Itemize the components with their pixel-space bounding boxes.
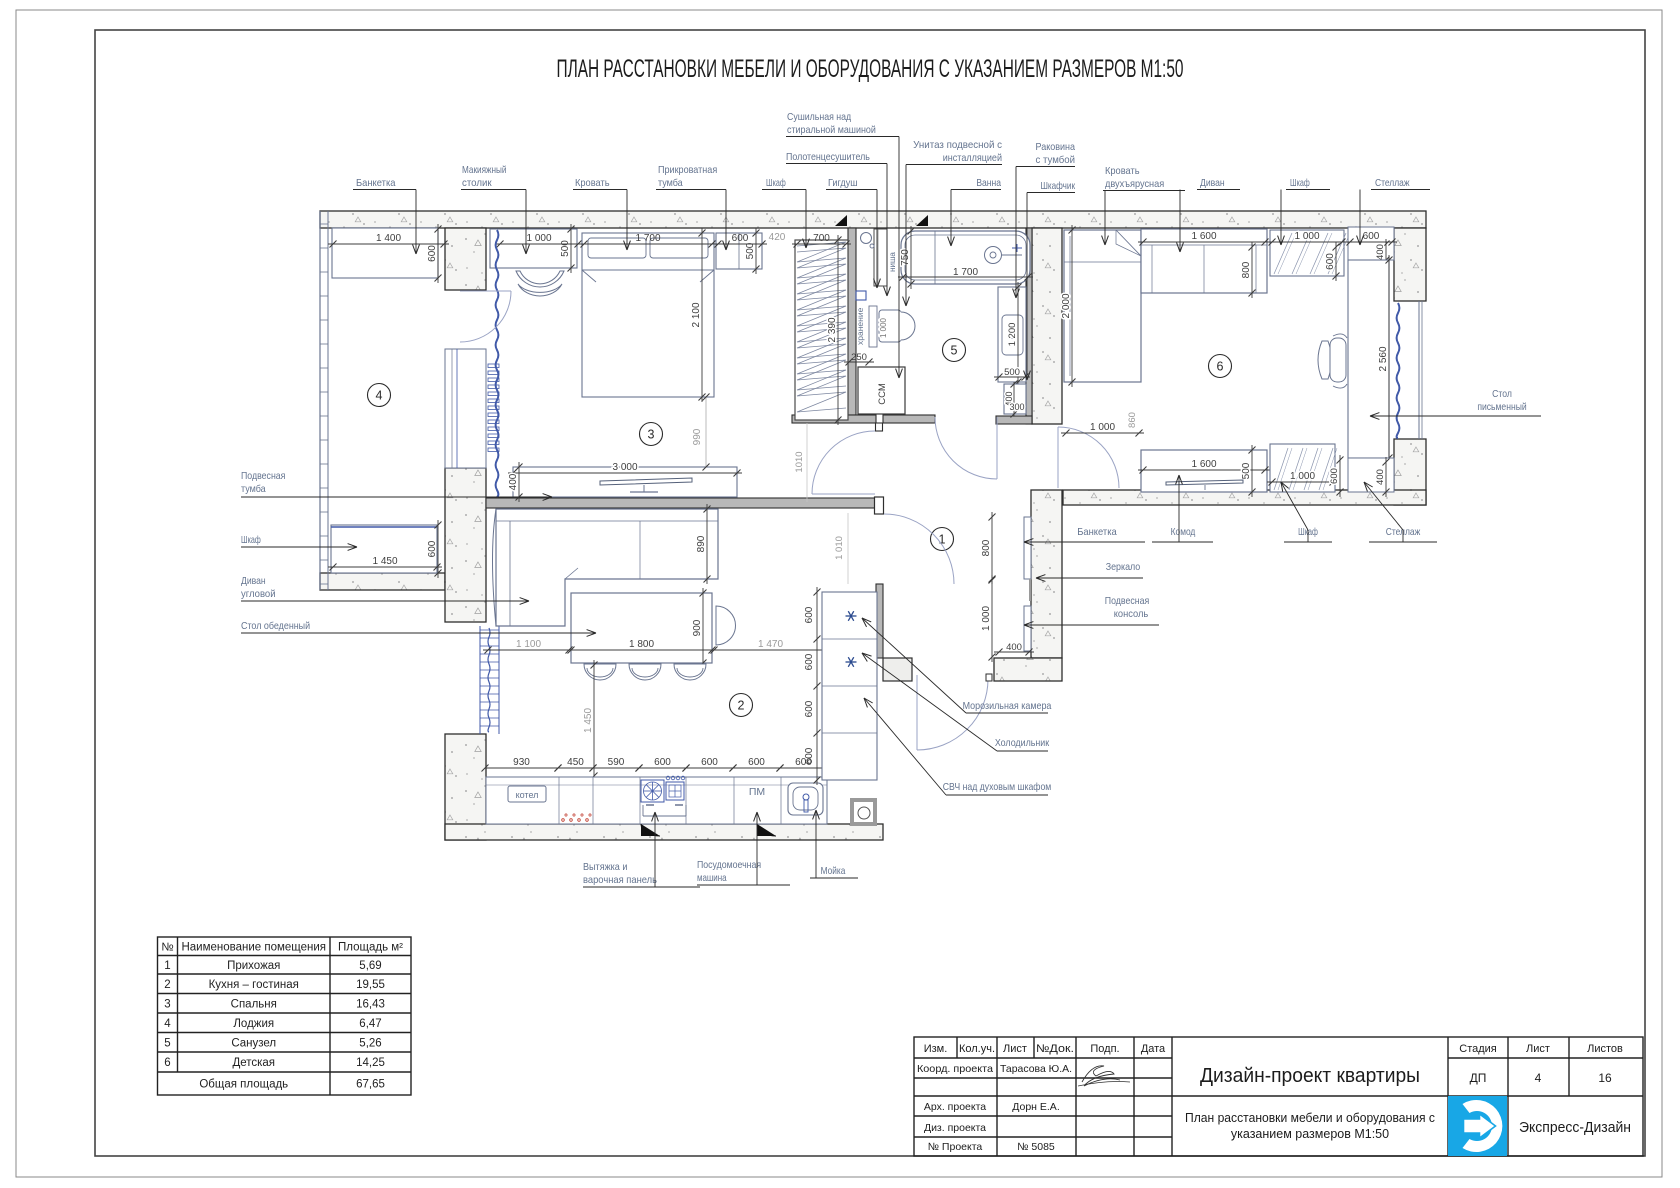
svg-text:ПЛАН РАССТАНОВКИ МЕБЕЛИ И ОБОР: ПЛАН РАССТАНОВКИ МЕБЕЛИ И ОБОРУДОВАНИЯ С… <box>557 55 1184 83</box>
svg-text:2 390: 2 390 <box>827 317 838 342</box>
svg-text:котел: котел <box>516 790 539 800</box>
svg-text:Кровать: Кровать <box>575 177 610 189</box>
svg-text:1 000: 1 000 <box>879 317 888 338</box>
svg-text:2: 2 <box>164 979 170 991</box>
svg-text:Зеркало: Зеркало <box>1106 561 1141 573</box>
svg-text:ССМ: ССМ <box>877 383 888 405</box>
svg-text:Лист: Лист <box>1526 1043 1550 1055</box>
svg-text:600: 600 <box>1325 253 1336 270</box>
svg-text:ПМ: ПМ <box>749 786 765 798</box>
svg-text:Площадь м²: Площадь м² <box>338 941 403 953</box>
svg-text:5: 5 <box>164 1037 170 1049</box>
svg-text:1 100: 1 100 <box>516 639 541 650</box>
svg-text:План расстановки мебели и обор: План расстановки мебели и оборудования с <box>1185 1111 1435 1125</box>
svg-text:Стол обеденный: Стол обеденный <box>241 620 310 632</box>
svg-text:1010: 1010 <box>794 451 805 472</box>
svg-text:хранение: хранение <box>855 307 865 345</box>
svg-text:14,25: 14,25 <box>356 1057 385 1069</box>
svg-text:Экспресс-Дизайн: Экспресс-Дизайн <box>1519 1120 1631 1136</box>
svg-text:Кол.уч.: Кол.уч. <box>959 1043 995 1055</box>
svg-text:№ Проекта: № Проекта <box>928 1141 983 1153</box>
svg-text:Прикроватная: Прикроватная <box>658 164 717 176</box>
svg-text:Кровать: Кровать <box>1105 165 1140 177</box>
svg-text:600: 600 <box>701 757 718 768</box>
svg-text:2 000: 2 000 <box>1061 293 1072 318</box>
svg-text:1 450: 1 450 <box>583 708 594 733</box>
svg-text:Диван: Диван <box>241 575 266 587</box>
svg-text:инсталляцией: инсталляцией <box>943 152 1002 164</box>
svg-text:1 600: 1 600 <box>1191 459 1216 470</box>
svg-text:Диз. проекта: Диз. проекта <box>924 1122 986 1134</box>
svg-text:1 000: 1 000 <box>1294 231 1319 242</box>
svg-text:варочная панель: варочная панель <box>583 874 657 886</box>
svg-text:Раковина: Раковина <box>1036 141 1076 153</box>
svg-text:машина: машина <box>697 872 727 884</box>
svg-text:столик: столик <box>462 177 492 189</box>
svg-text:600: 600 <box>804 653 815 670</box>
svg-text:600: 600 <box>732 233 749 244</box>
svg-text:Холодильник: Холодильник <box>995 737 1050 749</box>
svg-text:450: 450 <box>567 757 584 768</box>
svg-text:с тумбой: с тумбой <box>1036 154 1076 166</box>
svg-text:400: 400 <box>1375 244 1386 260</box>
svg-text:Полотенцесушитель: Полотенцесушитель <box>786 151 870 163</box>
svg-text:1 010: 1 010 <box>834 536 845 560</box>
svg-text:Подвесная: Подвесная <box>1105 595 1149 607</box>
svg-text:500: 500 <box>1241 462 1252 479</box>
svg-text:Листов: Листов <box>1587 1043 1623 1055</box>
svg-text:Прихожая: Прихожая <box>227 960 280 972</box>
svg-text:Кухня – гостиная: Кухня – гостиная <box>209 979 299 991</box>
svg-text:Подвесная: Подвесная <box>241 470 285 482</box>
svg-text:Подп.: Подп. <box>1090 1043 1119 1055</box>
svg-text:19,55: 19,55 <box>356 979 385 991</box>
svg-text:Посудомоечная: Посудомоечная <box>697 859 761 871</box>
svg-text:Шкаф: Шкаф <box>1290 177 1310 189</box>
svg-text:5: 5 <box>951 344 958 358</box>
svg-text:1 470: 1 470 <box>758 639 783 650</box>
svg-text:600: 600 <box>1363 231 1380 242</box>
svg-text:600: 600 <box>804 747 815 764</box>
svg-text:Дизайн-проект квартиры: Дизайн-проект квартиры <box>1200 1065 1420 1087</box>
svg-text:Арх. проекта: Арх. проекта <box>924 1101 986 1113</box>
svg-text:Мойка: Мойка <box>821 865 846 877</box>
svg-text:5,69: 5,69 <box>359 960 381 972</box>
svg-text:16: 16 <box>1598 1071 1612 1085</box>
svg-text:1 600: 1 600 <box>1191 231 1216 242</box>
svg-text:1 000: 1 000 <box>1290 471 1315 482</box>
svg-text:Дорн Е.А.: Дорн Е.А. <box>1012 1101 1059 1113</box>
svg-text:консоль: консоль <box>1114 608 1149 620</box>
svg-text:600: 600 <box>427 540 438 557</box>
svg-text:990: 990 <box>692 428 703 445</box>
svg-text:600: 600 <box>804 606 815 623</box>
svg-text:6,47: 6,47 <box>359 1018 381 1030</box>
svg-text:Шкаф: Шкаф <box>766 177 786 189</box>
svg-text:Гигдуш: Гигдуш <box>828 177 858 189</box>
svg-text:750: 750 <box>900 249 911 266</box>
svg-text:Общая площадь: Общая площадь <box>199 1079 288 1091</box>
svg-text:600: 600 <box>748 757 765 768</box>
svg-text:3: 3 <box>164 998 170 1010</box>
svg-text:4: 4 <box>164 1018 171 1030</box>
svg-text:Изм.: Изм. <box>924 1043 948 1055</box>
svg-text:3 000: 3 000 <box>612 462 637 473</box>
svg-text:420: 420 <box>769 232 786 243</box>
svg-text:1: 1 <box>164 960 170 972</box>
svg-text:600: 600 <box>654 757 671 768</box>
svg-text:СВЧ над духовым шкафом: СВЧ над духовым шкафом <box>943 781 1052 793</box>
svg-text:1 400: 1 400 <box>376 233 401 244</box>
svg-text:1 700: 1 700 <box>635 233 660 244</box>
svg-text:4: 4 <box>1535 1071 1542 1085</box>
svg-text:Тарасова Ю.А.: Тарасова Ю.А. <box>1000 1063 1072 1075</box>
svg-text:5,26: 5,26 <box>359 1037 381 1049</box>
svg-text:1 800: 1 800 <box>629 639 654 650</box>
svg-text:Лоджия: Лоджия <box>233 1018 274 1030</box>
svg-text:2 100: 2 100 <box>691 302 702 327</box>
svg-text:Санузел: Санузел <box>231 1037 276 1049</box>
svg-text:250: 250 <box>851 352 867 363</box>
svg-text:Комод: Комод <box>1171 526 1196 538</box>
svg-text:Лист: Лист <box>1003 1043 1027 1055</box>
svg-text:930: 930 <box>513 757 530 768</box>
svg-text:Сушильная над: Сушильная над <box>787 111 851 123</box>
svg-text:тумба: тумба <box>658 177 683 189</box>
svg-text:двухъярусная: двухъярусная <box>1105 178 1164 190</box>
svg-text:Стол: Стол <box>1492 388 1512 400</box>
svg-text:800: 800 <box>1241 261 1252 278</box>
svg-text:письменный: письменный <box>1477 401 1526 413</box>
svg-text:500: 500 <box>1004 367 1020 378</box>
svg-text:Спальня: Спальня <box>231 998 277 1010</box>
svg-text:500: 500 <box>745 242 756 259</box>
svg-text:№: № <box>161 941 173 953</box>
svg-text:Шкафчик: Шкафчик <box>1040 180 1075 192</box>
svg-text:590: 590 <box>608 757 625 768</box>
svg-text:угловой: угловой <box>241 588 276 600</box>
svg-text:400: 400 <box>508 473 519 490</box>
svg-text:890: 890 <box>696 535 707 552</box>
svg-text:600: 600 <box>804 700 815 717</box>
svg-text:1 000: 1 000 <box>981 606 992 631</box>
svg-text:тумба: тумба <box>241 483 266 495</box>
svg-text:67,65: 67,65 <box>356 1079 385 1091</box>
svg-text:Банкетка: Банкетка <box>356 177 396 189</box>
svg-text:500: 500 <box>560 240 571 257</box>
svg-text:900: 900 <box>692 619 703 636</box>
svg-text:Детская: Детская <box>232 1057 275 1069</box>
svg-text:Унитаз подвесной с: Унитаз подвесной с <box>913 139 1002 151</box>
svg-text:Макияжный: Макияжный <box>462 164 507 176</box>
svg-text:№ 5085: № 5085 <box>1017 1141 1055 1153</box>
svg-text:Наименование помещения: Наименование помещения <box>181 941 326 953</box>
svg-text:ДП: ДП <box>1470 1071 1487 1085</box>
svg-text:16,43: 16,43 <box>356 998 385 1010</box>
svg-text:600: 600 <box>427 245 438 262</box>
svg-text:1 700: 1 700 <box>953 267 978 278</box>
svg-text:Морозильная камера: Морозильная камера <box>963 700 1052 712</box>
svg-text:Ванна: Ванна <box>976 177 1001 189</box>
svg-text:Дата: Дата <box>1141 1043 1166 1055</box>
svg-text:6: 6 <box>1217 360 1224 374</box>
svg-text:6: 6 <box>164 1057 170 1069</box>
svg-text:Стадия: Стадия <box>1459 1043 1497 1055</box>
svg-text:800: 800 <box>981 539 992 556</box>
svg-text:400: 400 <box>1006 642 1022 653</box>
svg-text:стиральной машиной: стиральной машиной <box>787 124 876 136</box>
svg-text:Вытяжка и: Вытяжка и <box>583 861 628 873</box>
svg-text:ниша: ниша <box>888 252 897 272</box>
svg-text:3: 3 <box>648 428 655 442</box>
svg-text:Банкетка: Банкетка <box>1077 526 1117 538</box>
svg-text:1 000: 1 000 <box>526 233 551 244</box>
svg-text:1 450: 1 450 <box>372 556 397 567</box>
svg-text:700: 700 <box>813 233 830 244</box>
svg-text:600: 600 <box>1329 468 1340 484</box>
svg-text:1 200: 1 200 <box>1007 323 1018 347</box>
svg-text:Шкаф: Шкаф <box>241 534 261 546</box>
svg-text:860: 860 <box>1127 412 1138 428</box>
svg-text:1 000: 1 000 <box>1090 422 1115 433</box>
svg-text:Стеллаж: Стеллаж <box>1375 177 1410 189</box>
svg-text:400: 400 <box>1375 469 1386 485</box>
svg-text:№Док.: №Док. <box>1036 1043 1074 1055</box>
svg-text:Диван: Диван <box>1200 177 1225 189</box>
svg-text:300: 300 <box>1009 402 1024 412</box>
svg-text:Коорд. проекта: Коорд. проекта <box>917 1063 993 1075</box>
svg-text:указанием размеров М1:50: указанием размеров М1:50 <box>1231 1127 1389 1141</box>
svg-text:2: 2 <box>738 699 745 713</box>
svg-text:2 560: 2 560 <box>1378 346 1389 371</box>
svg-text:4: 4 <box>376 389 383 403</box>
